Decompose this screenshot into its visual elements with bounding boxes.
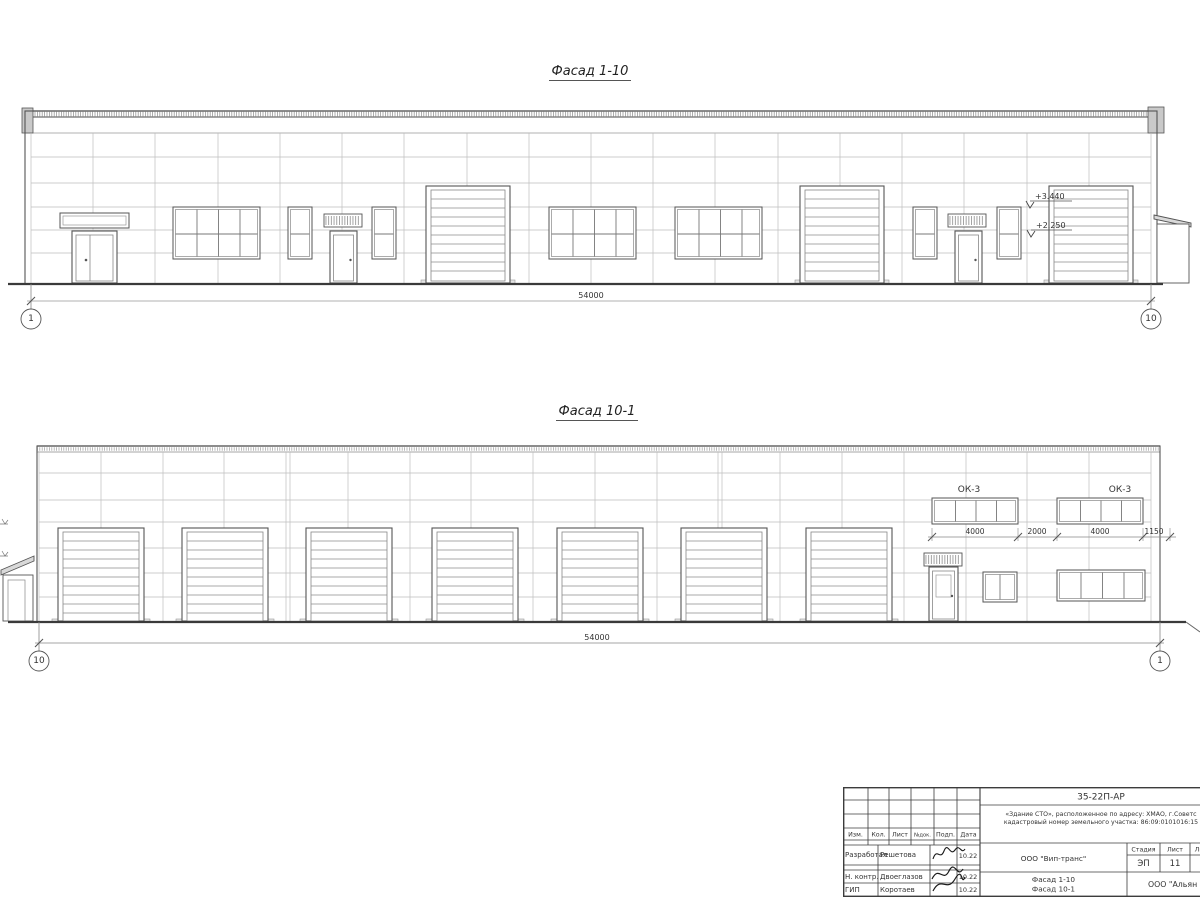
dim-2000: 2000 [1027,527,1046,536]
sheets-header: Ли [1195,847,1200,854]
sheet-title-line1: Фасад 1-10 [1032,875,1076,884]
sectional-door [421,186,515,284]
facade-10-1-drawing: ОК-3 ОК-3 4000 2000 4000 1150 [0,446,1200,671]
elevation-mark-upper: +3.440 [1035,192,1065,201]
sectional-door [426,528,524,623]
dimension-line: 54000 [35,622,1164,651]
name-developer: Решетова [880,851,916,859]
axis-label: 10 [1145,314,1157,324]
axis-marker-left: 1 [21,309,41,329]
axis-marker-left: 10 [29,651,49,671]
canopy [324,214,362,227]
partial-level-marks [0,519,8,556]
date-gip: 10.22 [959,886,978,894]
window-ok3 [1057,498,1143,524]
role-ncontrol: Н. контр. [845,873,879,881]
axis-label: 1 [28,314,34,324]
axis-marker-right: 1 [1150,651,1170,671]
col-list: Лист [892,832,908,839]
window [372,207,396,259]
sheet-header: Лист [1167,847,1183,854]
sheet-title-line2: Фасад 10-1 [1032,885,1075,894]
stage-header: Стадия [1131,847,1155,854]
dim-4000-a: 4000 [965,527,984,536]
entrance-door [72,231,117,283]
name-ncontrol: Двоеглазов [880,873,923,881]
window-mark-right: ОК-3 [1109,485,1131,495]
sheet-value: 11 [1170,859,1181,869]
date-developer: 10.22 [959,852,978,860]
elevation-drawings: +3.440 +2.250 54000 1 10 [0,0,1200,900]
side-annex [1154,215,1191,283]
axis-label: 10 [33,656,45,666]
col-ndok: №док. [914,833,931,839]
stage-value: ЭП [1137,859,1149,869]
col-izm: Изм. [848,832,863,839]
entrance-canopy [60,213,129,228]
canopy [948,214,986,227]
door [955,231,982,283]
side-annex [1,556,34,621]
window [675,207,762,259]
object-description-line1: «Здание СТО», расположенное по адресу: Х… [1005,811,1197,818]
door [330,231,357,283]
col-kol: Кол. [871,832,885,839]
role-gip: ГИП [845,886,860,894]
canopy [924,553,962,566]
axis-marker-right: 10 [1141,309,1161,329]
facade-1-10-drawing: +3.440 +2.250 54000 1 10 [8,107,1191,329]
total-dimension: 54000 [584,633,609,642]
customer-company: ООО "Вип-транс" [1021,854,1087,863]
col-data: Дата [960,832,976,839]
ground-slope [1186,622,1200,632]
document-number: 35-22П-АР [1077,793,1125,803]
window [173,207,260,259]
sectional-door [551,528,649,623]
elevation-mark-lower: +2.250 [1036,221,1066,230]
design-firm: ООО "Альян [1148,880,1197,889]
title-block: Изм. Кол. Лист №док. Подп. Дата Разработ… [843,787,1200,900]
sectional-door [795,186,889,284]
sectional-door [176,528,274,623]
window [983,572,1017,602]
sectional-door [300,528,398,623]
window [997,207,1021,259]
name-gip: Коротаев [880,886,915,894]
axis-label: 1 [1157,656,1163,666]
window-ok3 [932,498,1018,524]
window [913,207,937,259]
window [288,207,312,259]
dim-4000-b: 4000 [1090,527,1109,536]
dim-1150: 1150 [1144,527,1163,536]
drawing-sheet: { "facade_top": { "title": "Фасад 1-10",… [0,0,1200,900]
window [549,207,636,259]
door [929,567,958,621]
window [1057,570,1145,601]
window-mark-left: ОК-3 [958,485,980,495]
sectional-door [52,528,150,623]
sectional-door [675,528,773,623]
dimension-line: 54000 [27,284,1155,309]
sectional-door [800,528,898,623]
total-dimension: 54000 [578,291,603,300]
object-description-line2: кадастровый номер земельного участка: 86… [1004,818,1198,826]
col-podp: Подп. [936,832,955,839]
